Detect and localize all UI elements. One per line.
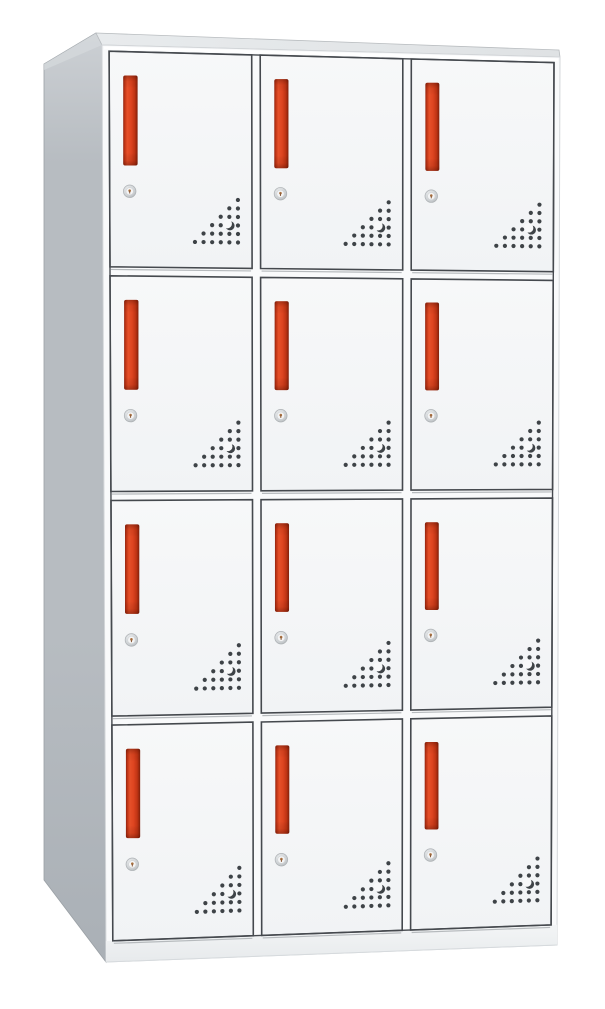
locker-door-r1c2 (260, 55, 403, 272)
locker-cabinet-photo (0, 0, 605, 1009)
locker-door-r3c3 (411, 498, 553, 712)
locker-door-r3c2 (261, 499, 403, 716)
keyhole-lock (275, 853, 288, 866)
side-panel (44, 33, 106, 962)
keyhole-lock (275, 631, 288, 644)
locker-door-r4c2 (261, 719, 402, 938)
locker-door-r3c1 (111, 500, 253, 719)
keyhole-lock (274, 187, 287, 200)
cabinet-illustration (0, 0, 605, 1009)
locker-door-r4c1 (112, 722, 253, 943)
locker-door-r2c3 (411, 279, 553, 493)
keyhole-lock (274, 409, 287, 422)
locker-door-r1c1 (109, 51, 252, 271)
keyhole-lock (425, 409, 438, 422)
keyhole-lock (424, 629, 437, 642)
keyhole-lock (126, 858, 139, 871)
locker-door-r2c2 (261, 277, 403, 493)
locker-door-r2c1 (110, 276, 253, 494)
keyhole-lock (424, 849, 437, 862)
keyhole-lock (425, 190, 438, 203)
keyhole-lock (125, 634, 138, 647)
locker-door-r4c3 (411, 716, 552, 933)
locker-door-r1c3 (411, 59, 554, 274)
keyhole-lock (123, 185, 136, 198)
keyhole-lock (124, 409, 137, 422)
